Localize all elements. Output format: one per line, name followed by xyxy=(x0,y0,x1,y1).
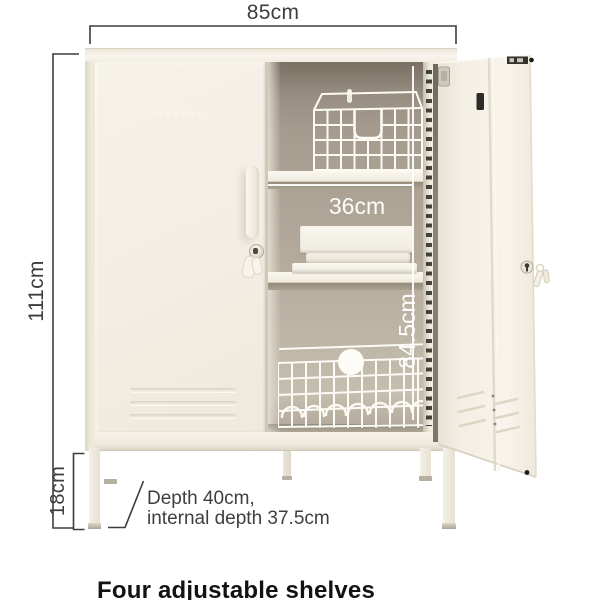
leg-height-dimension-line xyxy=(74,454,85,530)
depth-annotation-line1: Depth 40cm, xyxy=(147,489,330,509)
depth-annotation: Depth 40cm, internal depth 37.5cm xyxy=(147,489,330,528)
depth-annotation-line2: internal depth 37.5cm xyxy=(147,509,330,529)
leg-height-dimension-label: 18cm xyxy=(47,461,69,521)
width-dimension-line xyxy=(90,26,456,44)
depth-leader-line xyxy=(108,481,144,528)
product-dimension-diagram: mustard xyxy=(0,0,600,600)
height-dimension-label: 111cm xyxy=(25,256,47,326)
caption-text: Four adjustable shelves xyxy=(97,577,375,600)
height-dimension-line xyxy=(53,54,79,528)
width-dimension-label: 85cm xyxy=(233,1,313,25)
